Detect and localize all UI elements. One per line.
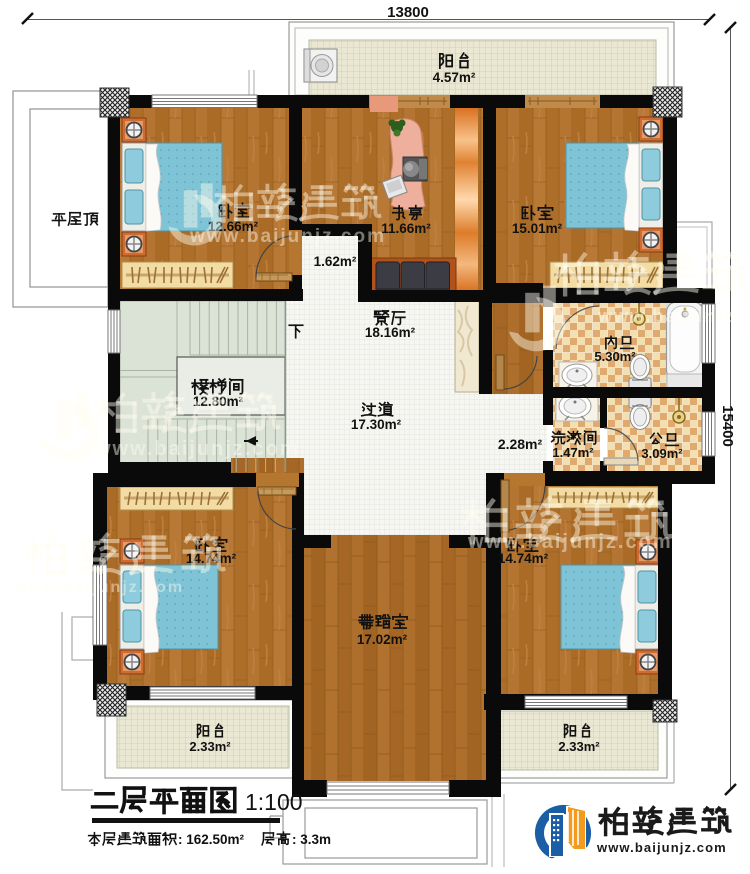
svg-text:11.66m²: 11.66m² [381,221,431,236]
svg-text:2.33m²: 2.33m² [558,739,600,754]
svg-text:www.baijunjz.com: www.baijunjz.com [94,438,300,460]
svg-text:15.01m²: 15.01m² [512,221,563,236]
svg-text:www.baijunjz.com: www.baijunjz.com [467,531,673,553]
svg-text:www.baijunjz.com: www.baijunjz.com [189,226,386,247]
svg-text:2.28m²: 2.28m² [498,436,543,452]
svg-text:: 162.50m²: : 162.50m² [178,832,245,847]
svg-text:14.74m²: 14.74m² [498,551,549,566]
svg-text:2.33m²: 2.33m² [189,739,231,754]
svg-text:1.47m²: 1.47m² [552,445,594,460]
svg-text:: 3.3m: : 3.3m [292,832,331,847]
svg-text:4.57m²: 4.57m² [433,70,476,85]
svg-text:www.baijunjz.com: www.baijunjz.com [597,306,750,326]
svg-text:5.30m²: 5.30m² [594,349,636,364]
svg-text:15400: 15400 [719,405,736,447]
svg-text:17.02m²: 17.02m² [357,632,408,647]
svg-text:13800: 13800 [387,4,429,21]
svg-text:3.09m²: 3.09m² [641,446,683,461]
svg-text:18.16m²: 18.16m² [365,325,416,340]
svg-text:1.62m²: 1.62m² [314,254,357,269]
svg-text:17.30m²: 17.30m² [351,417,402,432]
svg-text:1:100: 1:100 [245,789,303,815]
svg-text:www.baijunjz.com: www.baijunjz.com [13,579,184,596]
svg-text:www.baijunjz.com: www.baijunjz.com [596,840,727,855]
